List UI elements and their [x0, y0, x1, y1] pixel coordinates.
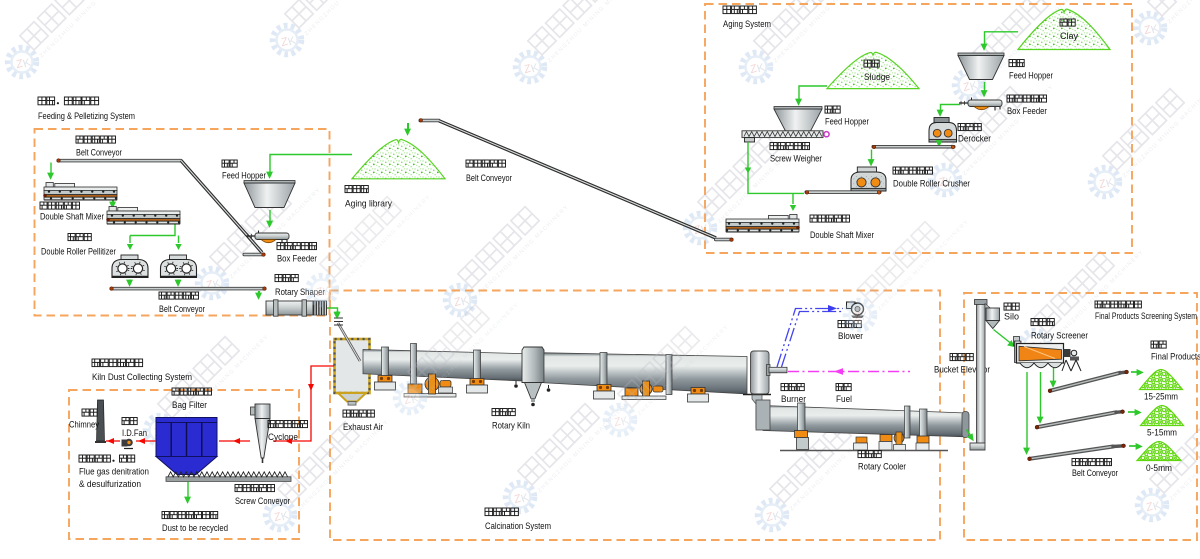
svg-text:Belt Conveyor: Belt Conveyor — [159, 304, 205, 314]
svg-text:Screw Conveyor: Screw Conveyor — [235, 496, 290, 506]
svg-text:Derocker: Derocker — [958, 134, 991, 144]
svg-text:Belt Conveyor: Belt Conveyor — [1072, 468, 1118, 478]
svg-text:Aging library: Aging library — [345, 199, 392, 209]
svg-text:Calcination System: Calcination System — [485, 521, 551, 531]
svg-text:Fuel: Fuel — [836, 394, 852, 404]
svg-text:Aging System: Aging System — [723, 19, 771, 29]
svg-text:Kiln Dust Collecting System: Kiln Dust Collecting System — [92, 372, 192, 382]
svg-text:Clay: Clay — [1060, 31, 1078, 41]
svg-text:Cyclone: Cyclone — [268, 432, 298, 442]
svg-text:Burner: Burner — [781, 394, 806, 404]
svg-text:Chimney: Chimney — [69, 420, 99, 430]
svg-text:Box Feeder: Box Feeder — [1007, 106, 1047, 116]
svg-text:Sludge: Sludge — [864, 72, 890, 82]
svg-text:Rotary Screener: Rotary Screener — [1031, 331, 1088, 341]
svg-text:5-15mm: 5-15mm — [1147, 428, 1177, 439]
svg-text:Double Roller Pellitizer: Double Roller Pellitizer — [41, 247, 116, 257]
svg-text:& desulfurization: & desulfurization — [79, 479, 141, 489]
svg-text:Box Feeder: Box Feeder — [277, 254, 317, 264]
svg-text:Flue gas denitration: Flue gas denitration — [79, 467, 149, 477]
svg-text:Belt Conveyor: Belt Conveyor — [466, 173, 512, 183]
svg-text:Exhaust Air: Exhaust Air — [343, 422, 383, 432]
svg-text:Feed Hopper: Feed Hopper — [1009, 71, 1053, 81]
svg-text:Feed Hopper: Feed Hopper — [222, 171, 266, 181]
svg-text:15-25mm: 15-25mm — [1144, 392, 1178, 403]
svg-text:Feeding & Pelletizing System: Feeding & Pelletizing System — [38, 111, 135, 121]
svg-text:Belt Conveyor: Belt Conveyor — [76, 148, 122, 158]
svg-text:Rotary Cooler: Rotary Cooler — [858, 462, 906, 472]
svg-text:Double Shaft Mixer: Double Shaft Mixer — [40, 212, 104, 222]
svg-text:Double Roller Crusher: Double Roller Crusher — [893, 179, 970, 189]
svg-text:Final Products Screening Syste: Final Products Screening System — [1095, 311, 1197, 321]
svg-text:Double Shaft Mixer: Double Shaft Mixer — [810, 230, 874, 240]
svg-text:Screw Weigher: Screw Weigher — [770, 154, 822, 164]
svg-text:Bag Filter: Bag Filter — [172, 400, 207, 410]
svg-text:0-5mm: 0-5mm — [1146, 463, 1172, 474]
svg-text:Feed Hopper: Feed Hopper — [825, 117, 869, 127]
svg-text:Silo: Silo — [1004, 312, 1019, 322]
svg-text:Blower: Blower — [838, 331, 863, 341]
svg-text:Rotary Kiln: Rotary Kiln — [492, 421, 530, 431]
svg-text:I.D.Fan: I.D.Fan — [122, 428, 147, 438]
svg-text:Final Products: Final Products — [1151, 352, 1200, 362]
svg-text:Dust to be recycled: Dust to be recycled — [162, 523, 228, 533]
